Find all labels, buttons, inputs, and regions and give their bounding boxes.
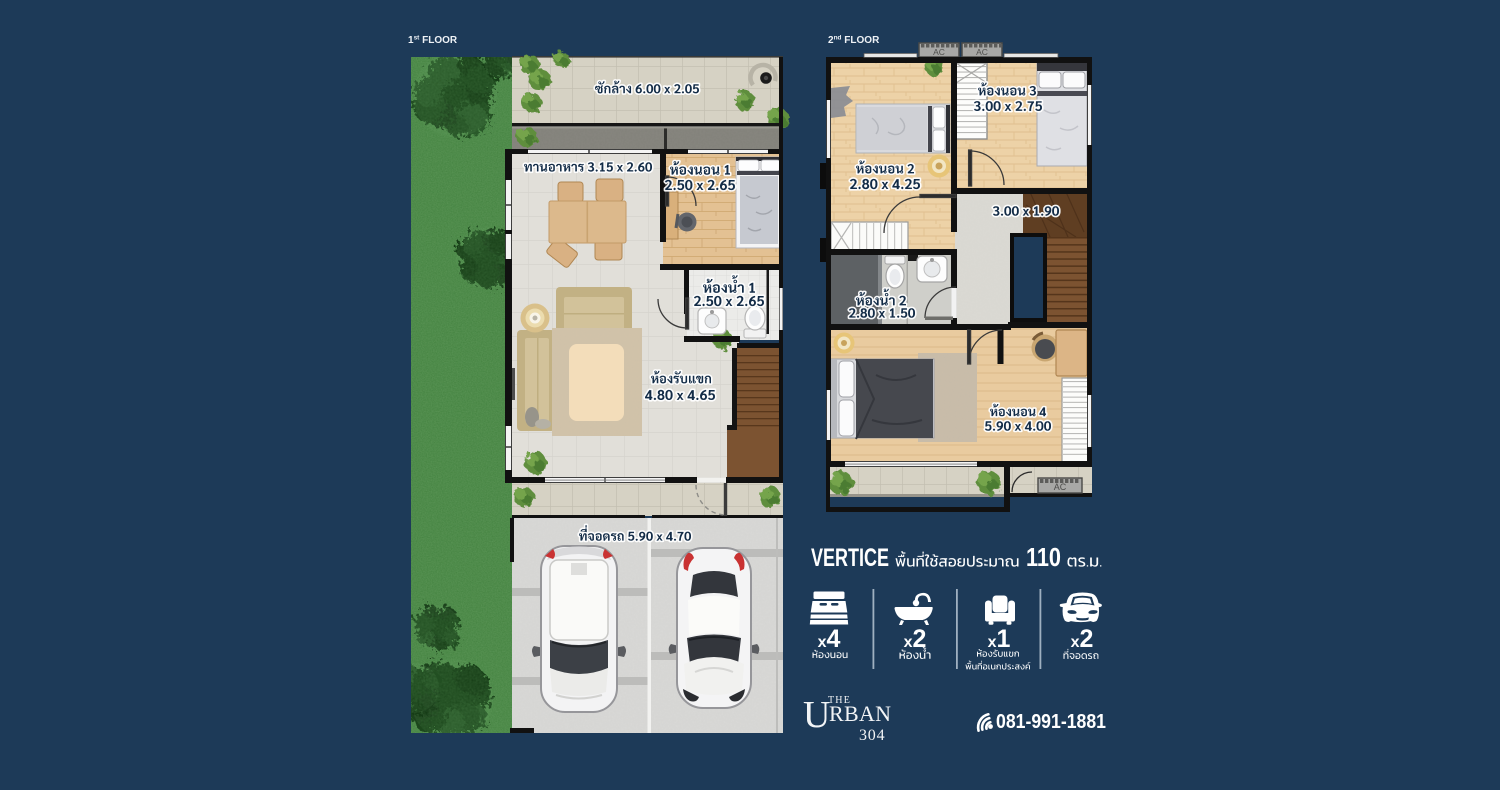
svg-text:RBAN: RBAN <box>829 701 891 726</box>
svg-text:AC: AC <box>976 47 988 57</box>
svg-text:AC: AC <box>933 47 945 57</box>
svg-text:AC: AC <box>1054 482 1067 492</box>
svg-text:081-991-1881: 081-991-1881 <box>996 711 1106 733</box>
svg-text:304: 304 <box>859 727 885 744</box>
svg-text:U: U <box>803 694 830 736</box>
svg-text:VERTICE: VERTICE <box>811 544 889 572</box>
svg-text:110: 110 <box>1026 542 1061 572</box>
